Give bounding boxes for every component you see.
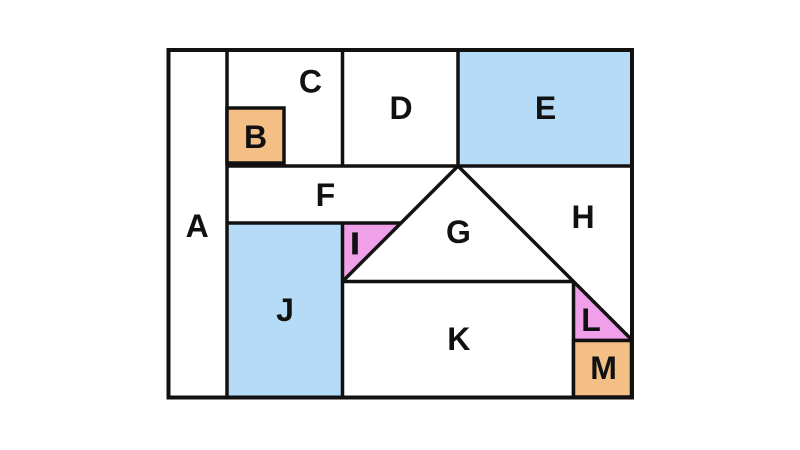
svg-text:M: M: [590, 350, 617, 386]
svg-text:H: H: [571, 199, 594, 235]
svg-text:J: J: [276, 292, 294, 328]
svg-text:D: D: [389, 90, 412, 126]
svg-text:F: F: [316, 177, 336, 213]
svg-text:G: G: [446, 214, 471, 250]
svg-text:B: B: [244, 119, 267, 155]
svg-text:A: A: [186, 208, 209, 244]
svg-text:C: C: [299, 63, 322, 99]
svg-text:K: K: [447, 321, 470, 357]
svg-text:L: L: [581, 302, 601, 338]
svg-text:E: E: [535, 90, 556, 126]
